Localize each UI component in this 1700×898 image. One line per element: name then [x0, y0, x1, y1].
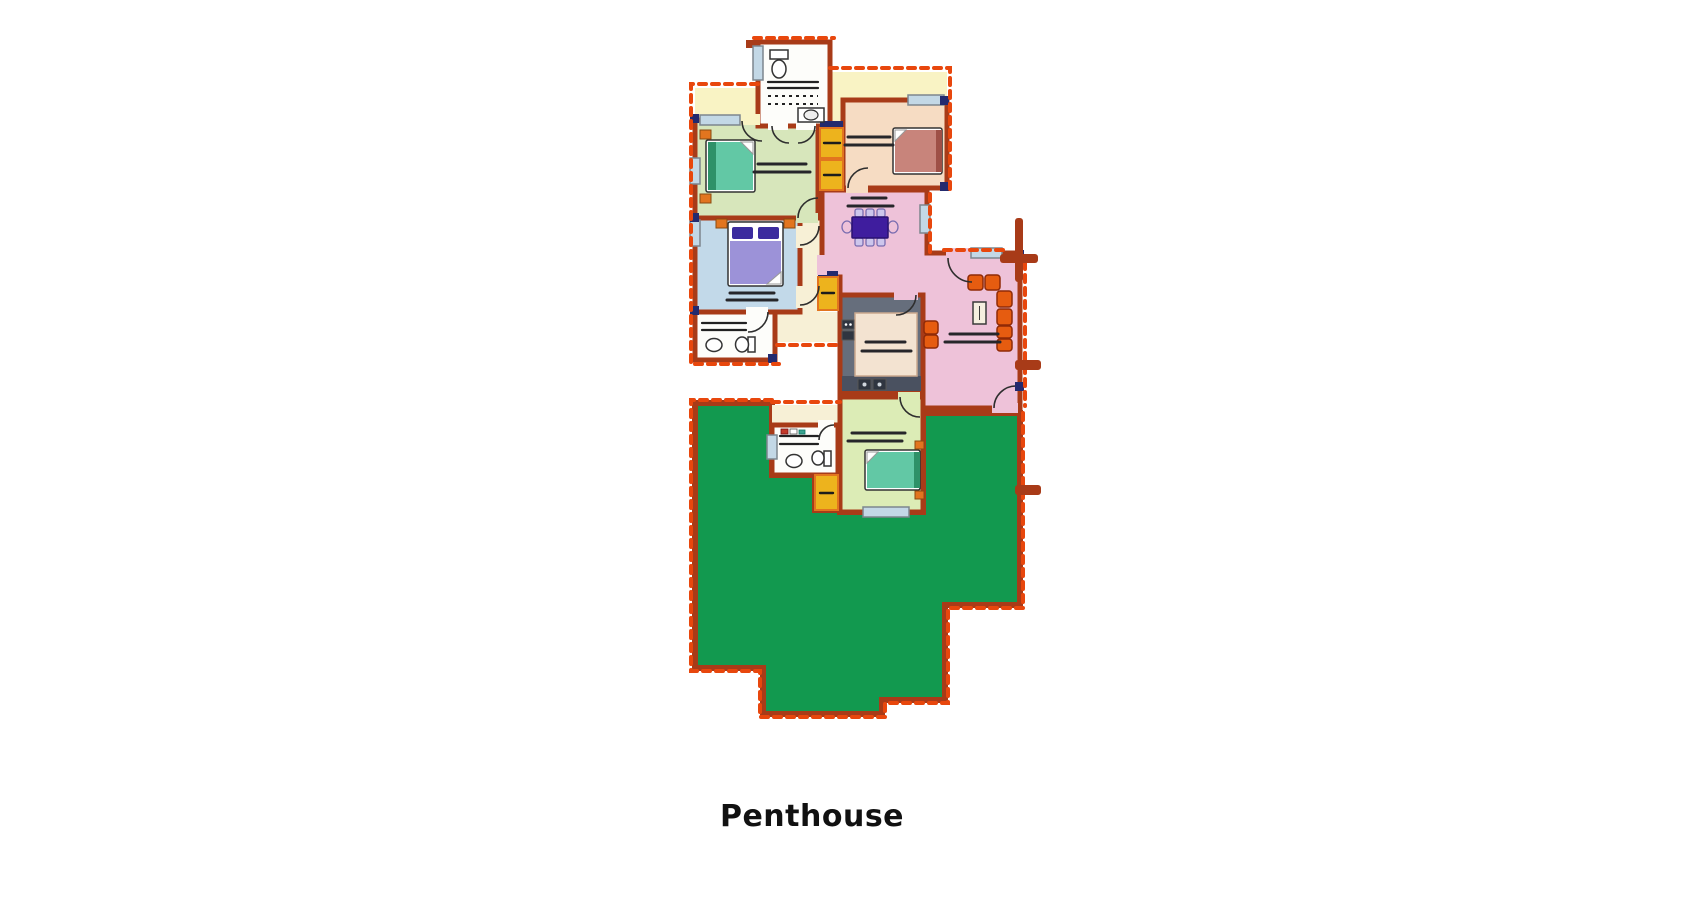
- door-gap: [796, 213, 818, 223]
- window: [908, 95, 944, 105]
- sink-basin: [786, 455, 802, 468]
- window: [700, 115, 740, 125]
- nightstand: [700, 130, 711, 139]
- sink-basin-dot: [863, 383, 867, 387]
- window: [753, 46, 763, 80]
- toilet-tank: [824, 451, 831, 466]
- door-gap: [740, 114, 760, 125]
- wall-stub: [1015, 218, 1023, 282]
- pillow: [732, 227, 753, 239]
- door-gap: [898, 392, 920, 402]
- bed-headboard: [936, 130, 942, 172]
- oven-icon: [842, 331, 854, 340]
- dining-chair: [855, 209, 863, 217]
- dining-chair: [855, 238, 863, 246]
- burner-dot: [878, 383, 882, 387]
- corner-block: [1015, 382, 1024, 391]
- corner-block: [768, 354, 777, 363]
- toilet-bowl: [736, 337, 749, 352]
- bed-headboard: [708, 142, 716, 190]
- door-gap: [992, 403, 1018, 413]
- bed-blanket: [716, 142, 753, 190]
- bed-blanket: [895, 130, 936, 172]
- nightstand: [784, 219, 795, 228]
- counter-item: [781, 429, 788, 434]
- floorplan-drawing: [0, 0, 1700, 898]
- corner-block: [940, 96, 949, 105]
- wall-stub: [1015, 360, 1041, 370]
- bed-blanket: [867, 452, 914, 488]
- sofa-seat: [997, 309, 1012, 325]
- dining-chair: [877, 209, 885, 217]
- bed-headboard: [914, 452, 920, 488]
- nightstand: [700, 194, 711, 203]
- door-gap: [894, 290, 918, 300]
- toilet-bowl: [772, 60, 786, 78]
- window: [863, 507, 909, 517]
- door-gap: [768, 118, 788, 130]
- sofa-seat: [985, 275, 1000, 290]
- floorplan-canvas: Penthouse: [0, 0, 1700, 898]
- sink-basin: [706, 339, 722, 352]
- toilet-tank: [770, 50, 788, 59]
- counter-item: [790, 429, 797, 434]
- armchair: [997, 326, 1012, 338]
- window: [767, 435, 777, 459]
- armchair: [924, 321, 938, 334]
- armchair: [924, 335, 938, 348]
- door-gap: [817, 255, 827, 275]
- counter-item: [799, 430, 805, 434]
- wall-stub: [1000, 254, 1038, 263]
- nightstand: [915, 491, 924, 499]
- hall-balcony-strip: [775, 312, 838, 342]
- nightstand: [915, 441, 924, 449]
- sink-basin: [804, 110, 818, 120]
- bathroom-middle-floor: [695, 312, 775, 360]
- burner-dot: [849, 323, 852, 326]
- corner-block: [940, 182, 949, 191]
- bed-blanket: [730, 241, 781, 284]
- floorplan-title: Penthouse: [642, 799, 982, 834]
- toilet-bowl: [812, 451, 824, 465]
- burner-dot: [845, 323, 848, 326]
- dining-chair: [866, 238, 874, 246]
- sofa-seat: [997, 291, 1012, 307]
- dining-chair: [877, 238, 885, 246]
- pillow: [758, 227, 779, 239]
- dining-chair: [866, 209, 874, 217]
- wall-stub: [1015, 485, 1041, 495]
- kitchen-island: [855, 313, 917, 376]
- door-gap: [846, 183, 868, 193]
- nightstand: [716, 219, 727, 228]
- dining-table: [852, 217, 888, 238]
- door-gap: [746, 307, 768, 317]
- stove-icon: [842, 320, 854, 329]
